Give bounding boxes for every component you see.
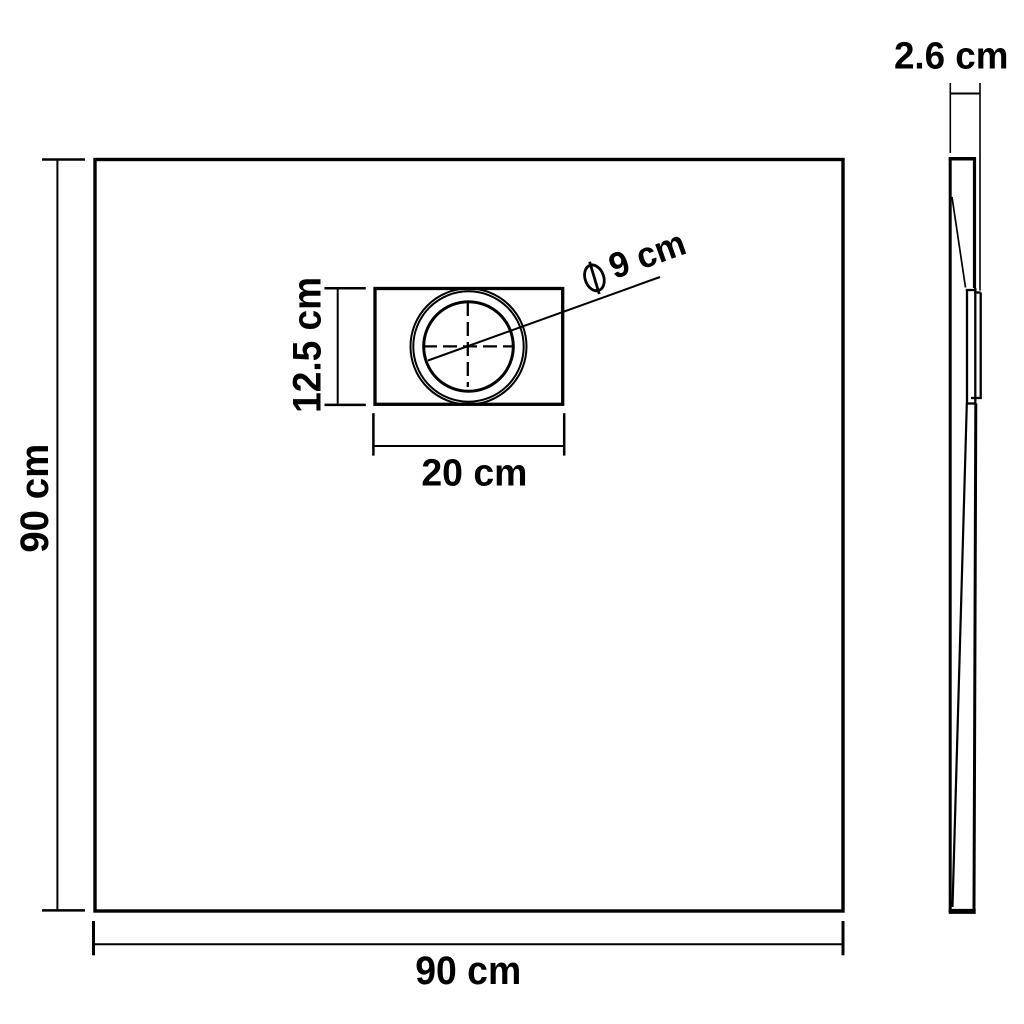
- svg-text:12.5 cm: 12.5 cm: [286, 277, 330, 413]
- svg-text:2.6 cm: 2.6 cm: [894, 35, 1009, 78]
- svg-text:90 cm: 90 cm: [13, 444, 57, 553]
- svg-text:90 cm: 90 cm: [415, 949, 521, 993]
- svg-text:20 cm: 20 cm: [421, 452, 527, 495]
